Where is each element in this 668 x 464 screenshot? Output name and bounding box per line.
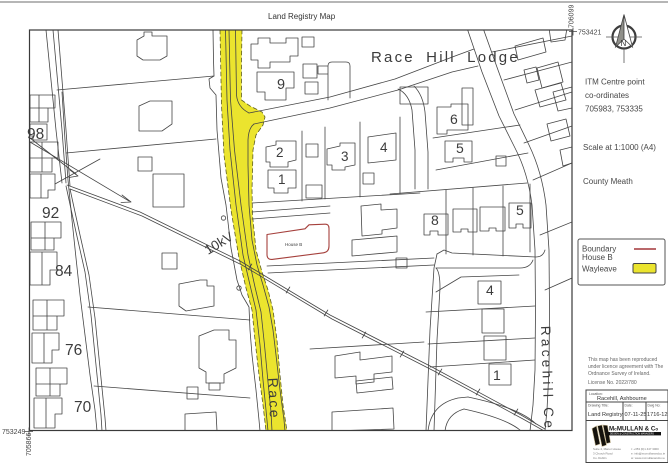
- svg-text:92: 92: [42, 205, 59, 222]
- svg-text:e: info@mcmullanandco.ie: e: info@mcmullanandco.ie: [631, 452, 665, 456]
- svg-text:705983, 753335: 705983, 753335: [585, 105, 643, 114]
- svg-text:Date:: Date:: [625, 404, 633, 408]
- svg-text:1: 1: [493, 367, 501, 383]
- svg-text:Co. Dublin: Co. Dublin: [593, 456, 607, 460]
- svg-text:License No. 2022/780: License No. 2022/780: [588, 380, 637, 386]
- svg-text:Wayleave: Wayleave: [582, 265, 617, 274]
- svg-text:Race: Race: [265, 377, 283, 420]
- svg-text:6: 6: [450, 111, 458, 127]
- svg-text:t: +353 (0)1 447 3000: t: +353 (0)1 447 3000: [631, 447, 659, 451]
- svg-text:Land Registry Map: Land Registry Map: [268, 12, 336, 21]
- svg-text:753249: 753249: [2, 429, 25, 436]
- svg-text:753421: 753421: [578, 30, 601, 37]
- svg-text:County Meath: County Meath: [583, 177, 633, 186]
- svg-text:ITM Centre point: ITM Centre point: [585, 78, 645, 87]
- svg-text:co-ordinates: co-ordinates: [585, 91, 629, 100]
- svg-text:5: 5: [516, 202, 524, 218]
- svg-text:House B: House B: [285, 242, 302, 247]
- svg-text:4: 4: [380, 140, 388, 155]
- svg-text:84: 84: [55, 263, 73, 280]
- svg-text:Suite 4, Manor House: Suite 4, Manor House: [593, 447, 621, 451]
- svg-text:1716-122: 1716-122: [647, 412, 668, 418]
- svg-text:3: 3: [341, 149, 349, 164]
- svg-text:DESIGN & CONSTRUCTION MANAGERS: DESIGN & CONSTRUCTION MANAGERS: [610, 433, 654, 436]
- svg-text:Racehill, Ashbourne: Racehill, Ashbourne: [597, 396, 647, 402]
- svg-text:1: 1: [278, 172, 286, 187]
- svg-text:Scale at 1:1000 (A4): Scale at 1:1000 (A4): [583, 143, 656, 152]
- svg-text:Ordnance Survey of Ireland.: Ordnance Survey of Ireland.: [588, 371, 651, 377]
- svg-text:Race Hill Lodge: Race Hill Lodge: [371, 49, 520, 66]
- svg-text:Land Registry: Land Registry: [588, 412, 623, 418]
- svg-text:House B: House B: [582, 253, 613, 262]
- svg-text:under licence agreement with T: under licence agreement with The: [588, 364, 663, 370]
- svg-text:4: 4: [486, 282, 494, 298]
- svg-text:N: N: [621, 39, 627, 48]
- svg-text:07-11-25: 07-11-25: [625, 412, 647, 418]
- svg-text:2: 2: [276, 145, 284, 160]
- svg-text:9: 9: [277, 77, 285, 93]
- svg-text:Dwg No:: Dwg No:: [648, 404, 661, 408]
- svg-text:w: www.mcmullanandco.ie: w: www.mcmullanandco.ie: [631, 456, 665, 460]
- svg-text:Drawing Title:: Drawing Title:: [588, 404, 609, 408]
- svg-text:705866: 705866: [26, 433, 33, 456]
- svg-text:8: 8: [431, 212, 439, 228]
- svg-text:This map has been reproduced: This map has been reproduced: [588, 357, 657, 363]
- svg-text:70: 70: [74, 399, 92, 416]
- svg-text:706099: 706099: [569, 5, 576, 28]
- svg-text:3 Church Road: 3 Church Road: [593, 452, 613, 456]
- svg-text:Racehill Ce: Racehill Ce: [538, 326, 557, 432]
- svg-text:5: 5: [456, 140, 464, 156]
- svg-text:McMULLAN & Co: McMULLAN & Co: [609, 426, 658, 433]
- svg-text:76: 76: [65, 342, 82, 359]
